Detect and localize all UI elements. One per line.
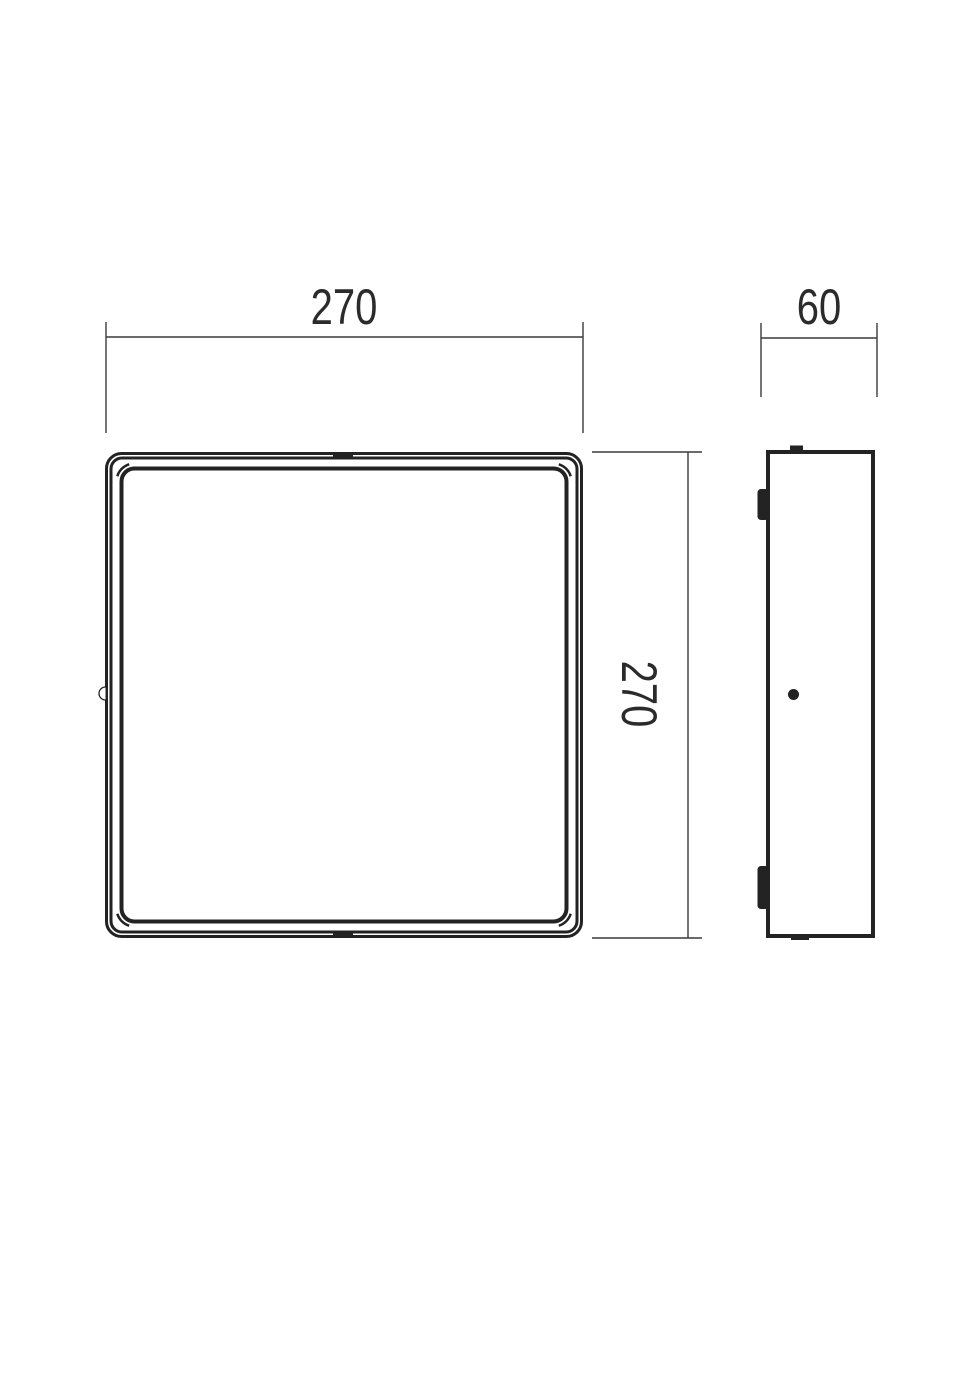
top-edge-seam-mark bbox=[333, 454, 353, 459]
dimension-annotations: 270 60 270 bbox=[106, 279, 877, 938]
side-top-edge-tick bbox=[790, 446, 803, 452]
screw-hole bbox=[788, 689, 799, 700]
height-dimension-label: 270 bbox=[611, 661, 667, 728]
dimension-width: 270 bbox=[106, 279, 583, 433]
drawing-canvas: 270 60 270 bbox=[0, 0, 980, 1400]
mounting-clip-top bbox=[758, 489, 769, 520]
mounting-clip-bottom bbox=[758, 866, 769, 909]
bottom-edge-seam-mark bbox=[333, 931, 353, 936]
side-bottom-edge-tick bbox=[791, 934, 809, 940]
technical-drawing: 270 60 270 bbox=[0, 0, 980, 1400]
dimension-depth: 60 bbox=[761, 279, 877, 397]
left-edge-mounting-notch bbox=[99, 687, 105, 700]
width-dimension-label: 270 bbox=[311, 279, 378, 335]
dimension-height: 270 bbox=[592, 452, 702, 938]
depth-dimension-label: 60 bbox=[797, 279, 841, 335]
front-outer-frame-line bbox=[107, 454, 582, 937]
side-body-profile bbox=[768, 452, 873, 936]
side-view bbox=[758, 446, 874, 941]
front-diffuser-panel bbox=[122, 469, 567, 922]
front-outer-frame-inner-line bbox=[111, 458, 577, 932]
front-view bbox=[99, 454, 582, 937]
